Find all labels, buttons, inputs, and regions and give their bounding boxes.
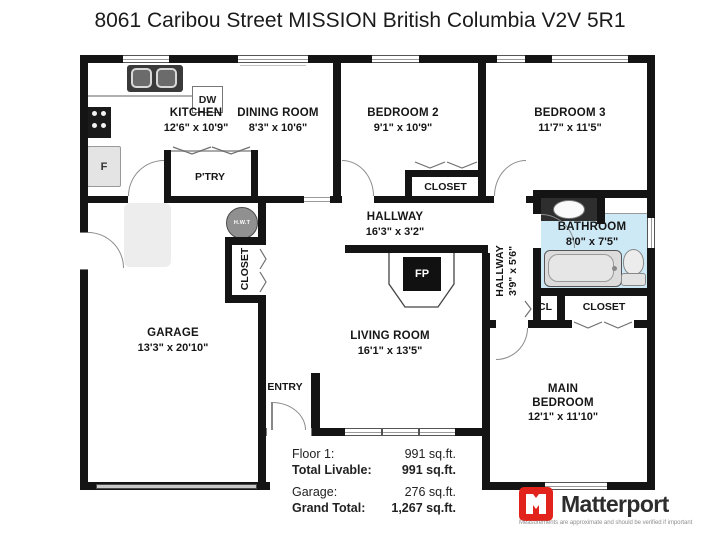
bedroom2-label: BEDROOM 2 9'1" x 10'9" [343, 107, 463, 135]
dishwasher-label: DW [199, 94, 217, 106]
wall [528, 320, 572, 328]
total-label: Garage: [292, 485, 337, 501]
sink-basin [156, 68, 177, 88]
door-leaf [271, 402, 273, 430]
total-row: Grand Total: 1,267 sq.ft. [292, 501, 456, 517]
door-arc [128, 160, 164, 196]
total-row: Floor 1: 991 sq.ft. [292, 447, 456, 463]
bathroom-nook [605, 198, 647, 214]
door-opening [80, 232, 88, 270]
dining-room-label: DINING ROOM 8'3" x 10'6" [218, 107, 338, 135]
entry-label: ENTRY [250, 381, 320, 393]
matterport-logo: Matterport [518, 486, 669, 522]
closet-label: CLOSET [405, 181, 486, 193]
fridge-label: F [101, 161, 108, 173]
wall [533, 190, 655, 198]
room-name: HALLWAY [494, 224, 506, 318]
window [647, 218, 655, 248]
bifold-door-icon [171, 146, 251, 156]
room-dims: 8'0" x 7'5" [537, 236, 647, 249]
total-value: 276 sq.ft. [405, 485, 456, 501]
fridge: F [87, 146, 121, 187]
wall [482, 253, 490, 490]
door-arc [88, 232, 124, 268]
garage-door [96, 484, 257, 489]
hot-water-tank-label: H.W.T [234, 220, 250, 226]
toilet-bowl [623, 249, 644, 275]
bathroom-label: BATHROOM 8'0" x 7'5" [537, 221, 647, 249]
vanity-sink [553, 200, 585, 219]
fireplace: FP [403, 257, 441, 291]
wall [164, 196, 258, 203]
window [372, 55, 419, 63]
bifold-door-icon [572, 321, 634, 330]
bathtub [544, 250, 622, 287]
measurement-disclaimer: Measurements are approximate and should … [519, 520, 692, 526]
wall [80, 55, 88, 490]
total-label: Grand Total: [292, 501, 365, 517]
living-room-label: LIVING ROOM 16'1" x 13'5" [330, 330, 450, 358]
total-row: Garage: 276 sq.ft. [292, 485, 456, 501]
wall [647, 55, 655, 490]
room-dims: 9'1" x 10'9" [343, 122, 463, 135]
wall [258, 196, 304, 203]
fireplace-label: FP [415, 268, 429, 280]
room-name: BEDROOM 3 [510, 107, 630, 121]
room-dims: 11'7" x 11'5" [510, 122, 630, 135]
wall [345, 245, 488, 253]
wall [374, 196, 494, 203]
toilet-tank [621, 273, 646, 286]
total-label: Floor 1: [292, 447, 334, 463]
wall [533, 288, 655, 296]
window [497, 55, 525, 63]
door-arc [496, 328, 528, 360]
sink-basin [131, 68, 152, 88]
tub-drain [612, 266, 617, 271]
hot-water-tank: H.W.T [226, 207, 258, 239]
window [345, 428, 455, 436]
total-value: 1,267 sq.ft. [391, 501, 456, 517]
stove-icon [88, 107, 111, 138]
bifold-door-icon [258, 247, 268, 293]
window [552, 55, 628, 63]
room-name: BEDROOM 2 [343, 107, 463, 121]
room-name: HALLWAY [335, 211, 455, 225]
room-dims: 16'3" x 3'2" [335, 226, 455, 239]
pantry-label: P'TRY [168, 171, 252, 183]
cased-opening [304, 197, 330, 202]
closet-small-label: CL [531, 301, 559, 313]
window-mullion [418, 429, 420, 435]
closet-label: CLOSET [565, 301, 643, 313]
wall [80, 196, 128, 203]
page-title: 8061 Caribou Street MISSION British Colu… [0, 9, 720, 33]
room-dims: 12'1" x 11'10" [523, 411, 603, 424]
room-dims: 13'3" x 20'10" [113, 342, 233, 355]
window-mullion [381, 429, 383, 435]
window [238, 55, 308, 63]
wall [225, 237, 232, 303]
room-dims: 8'3" x 10'6" [218, 122, 338, 135]
wall [533, 190, 541, 214]
window [123, 55, 169, 63]
room-name: DINING ROOM [218, 107, 338, 121]
closet-label: CLOSET [239, 239, 251, 299]
wall [634, 320, 655, 328]
hallway-label: HALLWAY 16'3" x 3'2" [335, 211, 455, 239]
door-arc [342, 160, 374, 196]
door-arc [272, 402, 306, 430]
room-name: LIVING ROOM [330, 330, 450, 344]
window-sill [240, 65, 306, 66]
room-dims: 16'1" x 13'5" [330, 345, 450, 358]
room-name: BATHROOM [537, 221, 647, 235]
room-name: GARAGE [113, 327, 233, 341]
bifold-door-icon [413, 161, 479, 170]
kitchen-counter-edge [88, 95, 194, 97]
matterport-logo-text: Matterport [561, 491, 669, 518]
area-totals: Floor 1: 991 sq.ft. Total Livable: 991 s… [292, 447, 456, 516]
kitchen-sink [127, 65, 183, 92]
door-arc [494, 160, 526, 196]
wall [405, 170, 486, 177]
total-value: 991 sq.ft. [402, 463, 456, 479]
total-label: Total Livable: [292, 463, 372, 479]
room-dims: 3'9" x 5'6" [508, 224, 520, 318]
matterport-logo-icon [518, 486, 554, 522]
hallway2-label: HALLWAY 3'9" x 5'6" [494, 224, 520, 318]
room-name: MAIN BEDROOM [523, 383, 603, 410]
bedroom3-label: BEDROOM 3 11'7" x 11'5" [510, 107, 630, 135]
furnace-block [124, 203, 171, 267]
garage-label: GARAGE 13'3" x 20'10" [113, 327, 233, 355]
main-bedroom-label: MAIN BEDROOM 12'1" x 11'10" [523, 383, 603, 424]
floor-plan-page: 8061 Caribou Street MISSION British Colu… [0, 0, 720, 540]
total-row: Total Livable: 991 sq.ft. [292, 463, 456, 479]
total-value: 991 sq.ft. [405, 447, 456, 463]
